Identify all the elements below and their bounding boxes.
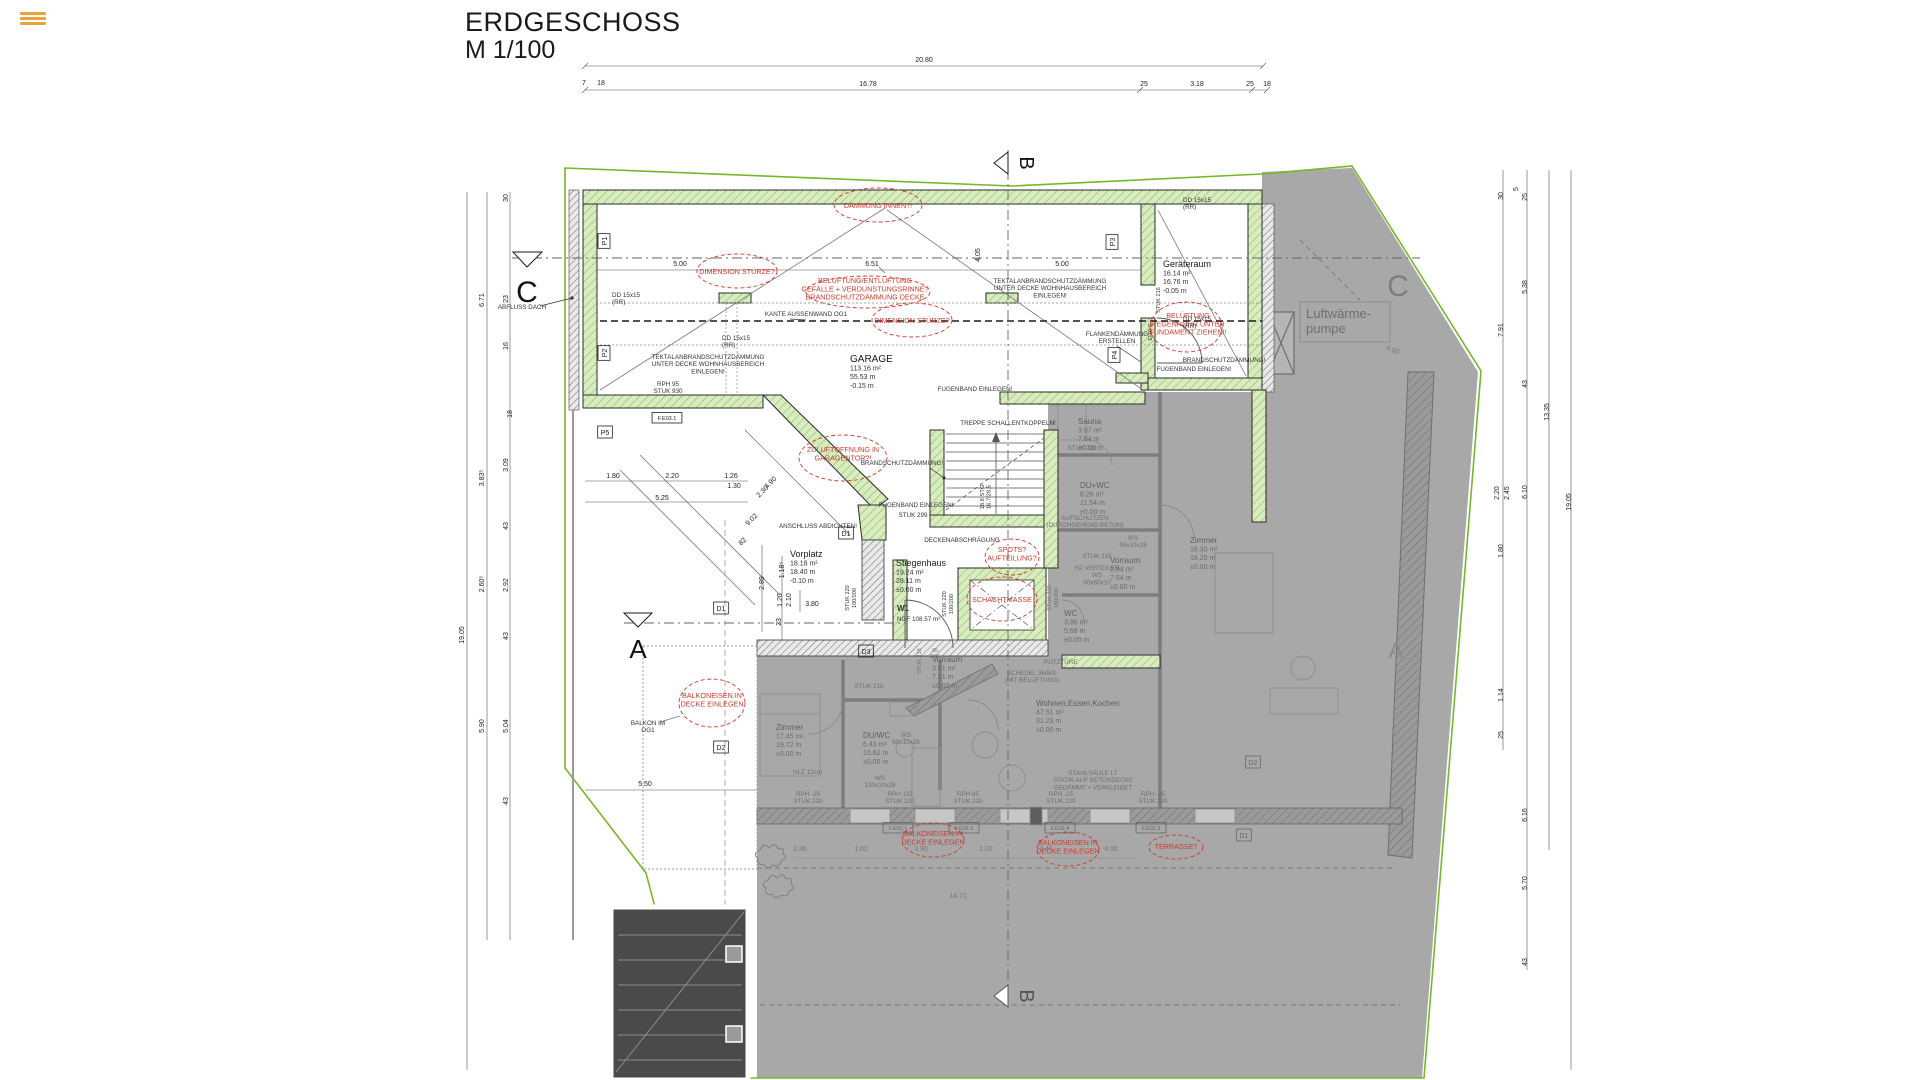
dimension-label: 18 bbox=[1263, 81, 1271, 88]
note: DD 15x15(RR) bbox=[722, 335, 750, 349]
room-label: Geräteraum16.14 m²16.76 m-0.05 m bbox=[1163, 259, 1211, 295]
note-gray: PUTZTÜRE bbox=[1044, 658, 1078, 666]
dimension-label: 3.18 bbox=[1190, 81, 1204, 88]
dimension-label: 5.00 bbox=[673, 261, 687, 268]
dimension-label: 16 bbox=[503, 342, 510, 350]
dimension-label: 1.14 bbox=[1498, 688, 1505, 702]
ref-tag: F.E02.1 bbox=[889, 826, 908, 832]
room-label: DU/WC6.43 m²10.62 m±0.00 m bbox=[863, 731, 890, 766]
dimension-label: 25 bbox=[1522, 193, 1529, 201]
dimension-label: 2.89 bbox=[759, 576, 766, 590]
room-label: Stiegenhaus19.24 m²28.11 m±0.00 m bbox=[896, 558, 947, 594]
dimension-label: 1.26 bbox=[724, 473, 738, 480]
dimension-label: 4.00 bbox=[1104, 846, 1118, 853]
section-letter: B bbox=[1015, 156, 1037, 169]
dimension-label: 1.20 bbox=[777, 593, 784, 607]
note: KANTE AUSSENWAND OG1 bbox=[765, 311, 848, 318]
dimension-label: 43 bbox=[1522, 380, 1529, 388]
note: EI30-C bbox=[1148, 323, 1154, 340]
dimension-label: 14.71 bbox=[949, 893, 967, 900]
dimension-label: 16.78 bbox=[859, 81, 877, 88]
ref-tag: F.E02.2 bbox=[955, 826, 974, 832]
note: ANSCHLUSS ABDICHTEN! bbox=[779, 523, 857, 530]
note: BRANDSCHUTZDÄMMUNG! bbox=[861, 459, 944, 467]
dimension-label: 6.71 bbox=[479, 293, 486, 307]
dimension-label: 1.02 bbox=[854, 846, 868, 853]
note-gray: RPH -25STUK 220 bbox=[1046, 791, 1076, 805]
ref-tag: D1 bbox=[842, 531, 851, 538]
south-wall-masonry bbox=[757, 640, 1048, 656]
note-gray: RPH 85STUK 220 bbox=[953, 791, 983, 805]
dimension-label: 2.60⁵ bbox=[479, 576, 486, 593]
note-gray: STUK 216 bbox=[917, 648, 923, 673]
ref-tag: D1 bbox=[717, 606, 726, 613]
note: STUK 220 bbox=[942, 591, 948, 616]
section-letter: A bbox=[1389, 638, 1404, 663]
ref-tag: P2 bbox=[602, 349, 609, 358]
dimension-label: 1.02 bbox=[979, 846, 993, 853]
dimension-label: 5.25 bbox=[655, 495, 669, 502]
note: 100/200 bbox=[949, 594, 955, 614]
note-gray: STUK 215 bbox=[854, 683, 884, 690]
note-gray: SCHEDEL 36/50L(MIT BELÜFTUNG) bbox=[1005, 670, 1060, 684]
ref-tag: P5 bbox=[601, 430, 610, 437]
section-letter: B bbox=[1015, 989, 1037, 1002]
dimension-label: 2.45 bbox=[1504, 486, 1511, 500]
dimension-label: 43 bbox=[503, 632, 510, 640]
ref-tag: D3 bbox=[862, 649, 871, 656]
floorplan-canvas: ERDGESCHOSS M 1/100 bbox=[0, 0, 1920, 1080]
dimension-label: 5.38 bbox=[1522, 280, 1529, 294]
dimension-label: 23 bbox=[503, 295, 510, 303]
dimension-label: 9.02 bbox=[745, 513, 760, 528]
dimension-label: 30 bbox=[503, 194, 510, 202]
note: STUK 299 bbox=[898, 512, 928, 519]
dimension-label: 3.90 bbox=[914, 846, 928, 853]
dimension-label: 6.10 bbox=[1522, 485, 1529, 499]
note: 18.8 STG16.7/28.5 bbox=[980, 484, 993, 509]
ref-tag: F.E02.3 bbox=[1142, 826, 1161, 832]
note: STUK 216 bbox=[1156, 287, 1162, 312]
note-gray: HLZ 12cm bbox=[793, 769, 822, 776]
dimension-label: 43 bbox=[1522, 958, 1529, 966]
room-label: Zimmer17.45 m²19.72 m±0.00 m bbox=[776, 723, 804, 758]
note: DECKENABSCHRÄGUNG bbox=[924, 536, 1000, 544]
red-annotation: DIMENSION STÜRZE? bbox=[874, 316, 949, 325]
dimension-label: 4.05 bbox=[975, 248, 982, 262]
dimension-label: 5.90 bbox=[479, 719, 486, 733]
dimension-label: 5.00 bbox=[1055, 261, 1069, 268]
dimension-label: 19.05 bbox=[459, 626, 466, 644]
red-annotation: BALKONEISEN INDECKE EINLEGEN bbox=[680, 691, 743, 708]
dimension-label: 30 bbox=[1498, 192, 1505, 200]
dimension-label: 2.92 bbox=[503, 578, 510, 592]
note-gray: STUK 220 bbox=[1047, 585, 1053, 610]
ref-tag: F.E03.1 bbox=[658, 416, 677, 422]
note: FUGENBAND EINLEGEN! bbox=[879, 502, 954, 509]
note: W1 bbox=[897, 604, 910, 613]
note-gray: RPH -25STUK 220 bbox=[793, 791, 823, 805]
plan-drawing: DÄMMUNG INNEN?!DIMENSION STÜRZE?DIMENSIO… bbox=[0, 0, 1920, 1080]
note: NGF 108.57 m² bbox=[897, 616, 940, 623]
section-letter: C bbox=[516, 276, 538, 309]
note-gray: RPH -25STUK 220 bbox=[1138, 791, 1168, 805]
dimension-label: 6.51 bbox=[865, 261, 879, 268]
dimension-label: 1.30 bbox=[727, 483, 741, 490]
section-letter: A bbox=[629, 634, 647, 664]
dimension-label: 13.35 bbox=[1544, 403, 1551, 421]
note: DD 15x15(RR) bbox=[612, 292, 640, 306]
dimension-label: 25 bbox=[1498, 731, 1505, 739]
ref-tag: D1 bbox=[1240, 833, 1249, 840]
dimension-label: 3.09 bbox=[503, 458, 510, 472]
dimension-label: 19.05 bbox=[1566, 493, 1573, 511]
note-gray: RPH 115STUK 220 bbox=[885, 791, 915, 805]
left-masonry-strip bbox=[569, 190, 579, 410]
red-annotation: SCHACHTMASSE bbox=[972, 595, 1032, 604]
note: TREPPE SCHALLENTKOPPELN! bbox=[960, 420, 1056, 427]
dimension-label: 2.46 bbox=[1039, 846, 1053, 853]
dimension-label: 3.80 bbox=[805, 601, 819, 608]
dimension-label: 1.80 bbox=[1498, 544, 1505, 558]
dimension-label: 43 bbox=[503, 522, 510, 530]
dimension-label: 5 bbox=[1513, 187, 1520, 191]
dimension-label: 82 bbox=[738, 537, 749, 548]
red-annotation: DIMENSION STÜRZE? bbox=[699, 267, 774, 276]
note-gray: STUK 215 bbox=[1082, 553, 1112, 560]
dimension-label: 7 bbox=[582, 80, 586, 87]
red-annotation: TERRASSE? bbox=[1155, 842, 1198, 851]
ref-tag: P1 bbox=[602, 237, 609, 246]
dimension-label: 5.50 bbox=[638, 781, 652, 788]
room-label: GARAGE113.16 m²55.53 m-0.15 m bbox=[850, 354, 893, 390]
dimension-label: 2.20 bbox=[665, 473, 679, 480]
red-annotation: SPOTS?AUFTEILUNG? bbox=[987, 545, 1037, 562]
dimension-label: 18 bbox=[507, 410, 514, 418]
dimension-label: 25 bbox=[1140, 81, 1148, 88]
dimension-label: 2.20 bbox=[1494, 486, 1501, 500]
note: FUGENBAND EINLEGEN! bbox=[1157, 366, 1232, 373]
dimension-label: 2.36 bbox=[793, 846, 807, 853]
ref-tag: D2 bbox=[1249, 760, 1258, 767]
room-label: Sauna3.07 m²7.64 m±0.00 m bbox=[1078, 417, 1103, 452]
dimension-label: 5.04 bbox=[503, 719, 510, 733]
note-gray: 100/200 bbox=[1054, 588, 1060, 608]
note: BRANDSCHUTZDÄMMUNG! bbox=[1183, 356, 1266, 364]
note: TEKTALANBRANDSCHUTZDÄMMUNGUNTER DECKE WO… bbox=[652, 353, 765, 375]
dimension-label: 1.18⁵ bbox=[779, 562, 786, 579]
ref-tag: P3 bbox=[1110, 238, 1117, 247]
ref-tag: P4 bbox=[1112, 351, 1119, 360]
dimension-label: 6.16 bbox=[1522, 808, 1529, 822]
note: STUK 220 bbox=[845, 585, 851, 610]
note: FLANKENDÄMMUNGERSTELLEN bbox=[1086, 330, 1148, 345]
dimension-label: 25 bbox=[1246, 81, 1254, 88]
room-label: Zimmer18.30 m²18.20 m±0.00 m bbox=[1190, 536, 1218, 571]
dimension-label: 2.10 bbox=[786, 593, 793, 607]
room-label: Vorplatz18.18 m²18.40 m-0.10 m bbox=[790, 549, 823, 585]
stair bbox=[946, 432, 1044, 514]
dimension-label: 3.83⁵ bbox=[479, 470, 486, 487]
dimension-label: 18 bbox=[597, 80, 605, 87]
dimension-label: 43 bbox=[503, 797, 510, 805]
red-annotation: DÄMMUNG INNEN?! bbox=[844, 201, 912, 210]
ref-tag: F.E02.4 bbox=[1051, 826, 1070, 832]
note: 100/200 bbox=[852, 588, 858, 608]
dimension-label: 20.80 bbox=[915, 57, 933, 64]
note: BALKON IMOG1 bbox=[631, 720, 665, 734]
door-pier-masonry bbox=[862, 540, 884, 620]
dimension-label: 7.91 bbox=[1498, 323, 1505, 337]
ref-tag: D2 bbox=[717, 745, 726, 752]
note: RPH 95STUK 930 bbox=[653, 381, 683, 395]
section-letter: C bbox=[1387, 270, 1409, 303]
lower-canopy-block bbox=[611, 907, 748, 1080]
note: FUGENBAND EINLEGEN! bbox=[938, 386, 1013, 393]
dimension-label: 23 bbox=[776, 618, 783, 626]
red-annotation: BELÜFTUNG/ENTLÜFTUNGGEFÄLLE + VERDUNSTUN… bbox=[801, 276, 928, 302]
dimension-label: 5.70 bbox=[1522, 876, 1529, 890]
dimension-label: 1.80 bbox=[606, 473, 620, 480]
